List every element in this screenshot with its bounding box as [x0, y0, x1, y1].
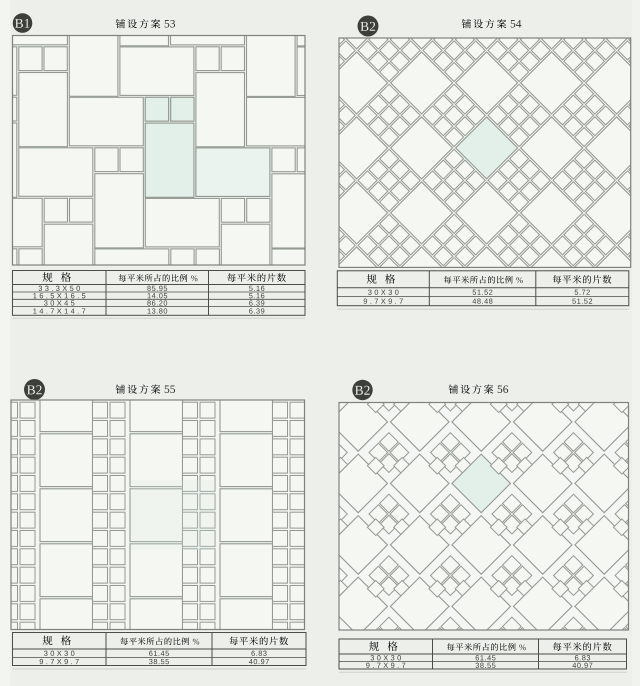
svg-text:54: 54 [510, 19, 522, 31]
svg-text:56: 56 [497, 384, 509, 396]
svg-text:55: 55 [164, 384, 176, 396]
svg-text:53: 53 [164, 19, 176, 31]
